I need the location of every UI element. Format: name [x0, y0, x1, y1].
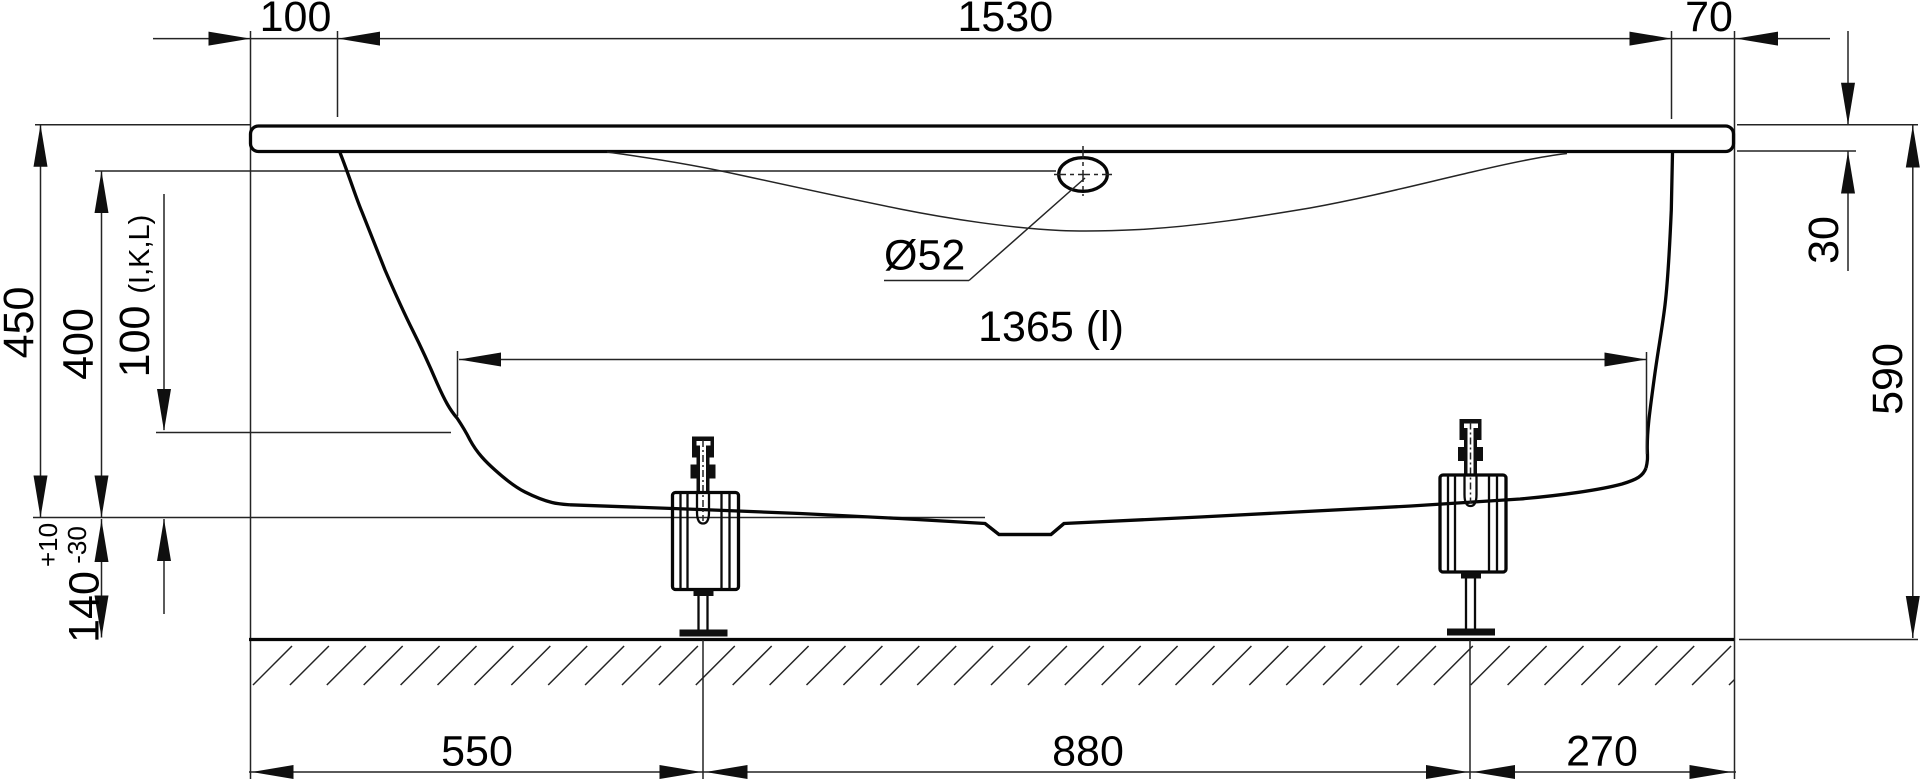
svg-text:140: 140: [61, 571, 109, 643]
svg-text:-30: -30: [62, 526, 92, 564]
svg-text:400: 400: [55, 308, 103, 380]
svg-text:450: 450: [0, 287, 43, 359]
svg-text:270: 270: [1566, 728, 1638, 776]
svg-text:590: 590: [1864, 343, 1912, 415]
svg-text:Ø52: Ø52: [884, 232, 965, 280]
svg-text:+10: +10: [33, 523, 63, 567]
svg-text:70: 70: [1685, 0, 1733, 41]
svg-text:1530: 1530: [957, 0, 1053, 41]
svg-text:880: 880: [1052, 728, 1124, 776]
svg-text:1365 (l): 1365 (l): [978, 303, 1124, 351]
svg-text:550: 550: [441, 728, 513, 776]
svg-text:100: 100: [260, 0, 332, 41]
svg-text:30: 30: [1800, 216, 1848, 264]
